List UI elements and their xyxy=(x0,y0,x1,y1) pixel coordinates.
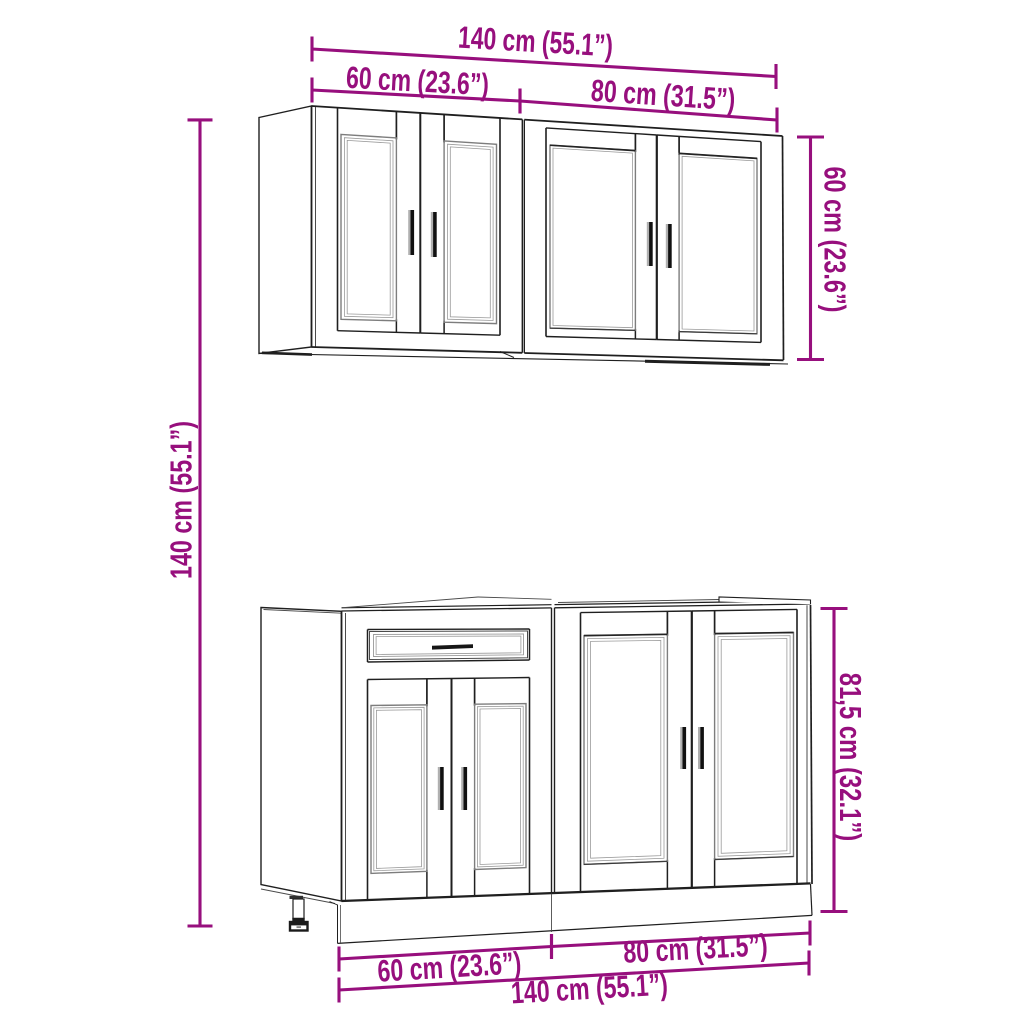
svg-text:81,5 cm (32.1”): 81,5 cm (32.1”) xyxy=(833,673,868,842)
svg-text:140 cm (55.1”): 140 cm (55.1”) xyxy=(163,421,198,579)
svg-text:60 cm (23.6”): 60 cm (23.6”) xyxy=(818,167,853,313)
svg-text:60 cm (23.6”): 60 cm (23.6”) xyxy=(345,60,490,102)
